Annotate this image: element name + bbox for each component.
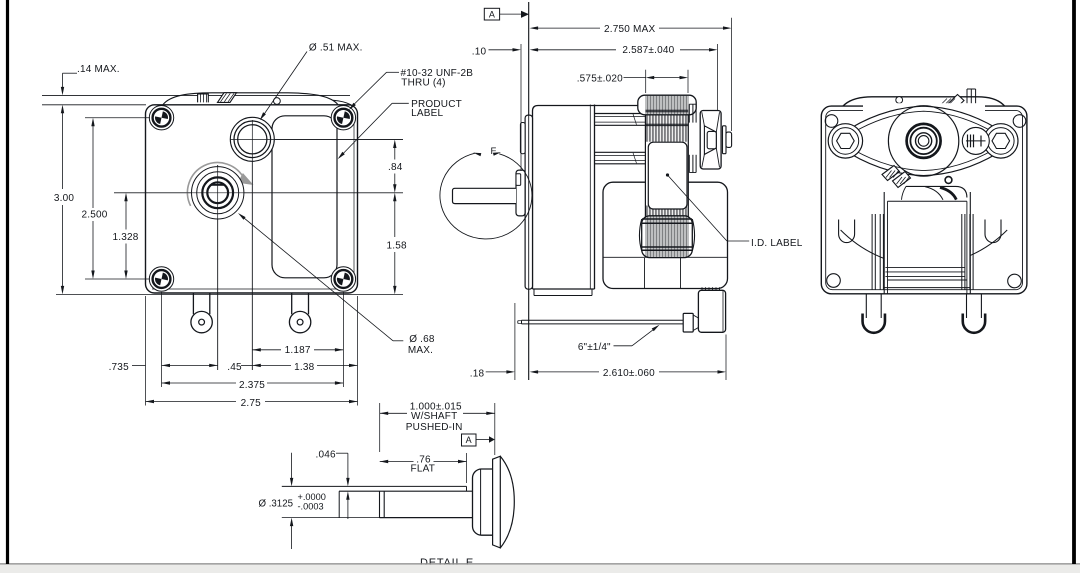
svg-text:LABEL: LABEL [411,108,443,119]
svg-text:.046: .046 [316,450,337,461]
svg-text:MAX.: MAX. [408,345,433,356]
svg-text:1.38: 1.38 [294,362,315,373]
svg-text:W/SHAFT: W/SHAFT [411,411,457,422]
svg-text:A: A [466,435,472,445]
svg-text:.10: .10 [472,46,487,57]
svg-text:Ø .51 MAX.: Ø .51 MAX. [309,43,363,54]
svg-text:2.610±.060: 2.610±.060 [603,368,655,379]
svg-text:F: F [490,146,496,157]
svg-text:6"±1/4": 6"±1/4" [578,342,611,353]
svg-text:THRU (4): THRU (4) [401,77,445,88]
svg-text:2.750 MAX: 2.750 MAX [604,24,655,35]
svg-text:1.58: 1.58 [386,240,407,251]
svg-text:2.587±.040: 2.587±.040 [622,45,674,56]
svg-text:2.375: 2.375 [239,380,265,391]
svg-text:.14 MAX.: .14 MAX. [77,64,120,75]
svg-text:2.500: 2.500 [81,210,107,221]
svg-text:.45: .45 [227,362,242,373]
svg-text:.84: .84 [388,162,403,173]
svg-text:FLAT: FLAT [411,464,436,475]
svg-text:1.328: 1.328 [112,232,138,243]
svg-text:1.187: 1.187 [285,345,311,356]
svg-text:Ø .3125: Ø .3125 [259,499,293,510]
svg-text:A: A [489,9,495,19]
svg-text:.575±.020: .575±.020 [577,73,623,84]
svg-text:.18: .18 [470,369,485,380]
svg-text:2.75: 2.75 [241,398,262,409]
svg-text:-.0003: -.0003 [298,501,324,511]
svg-text:Ø .68: Ø .68 [409,334,435,345]
svg-text:PUSHED-IN: PUSHED-IN [406,422,463,433]
svg-text:I.D. LABEL: I.D. LABEL [751,238,803,249]
svg-text:.735: .735 [109,362,130,373]
svg-text:3.00: 3.00 [54,193,75,204]
